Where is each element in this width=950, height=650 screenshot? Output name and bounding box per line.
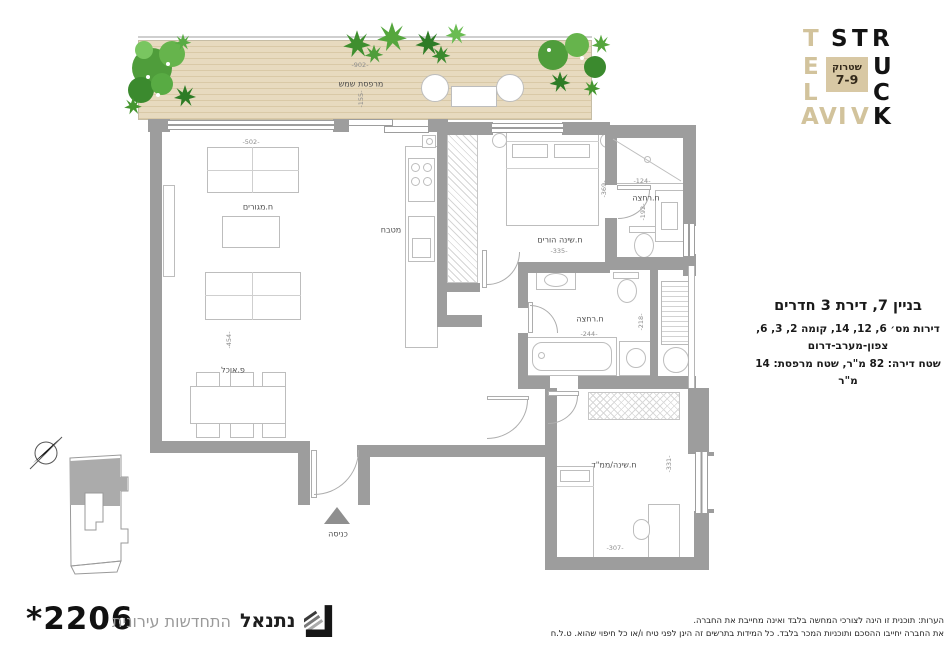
wall-segment [357,445,547,457]
dining-chair [230,423,254,438]
stove-burner [423,163,432,172]
dimension-label: -502- [242,138,259,146]
dimension-label: -192- [639,203,647,220]
dining-chair [196,372,220,387]
wall-segment [443,283,480,292]
mamad-door-arc [548,396,578,424]
toilet-tank [629,226,656,233]
drying-rack [661,281,691,345]
logo-letter: I [838,106,847,129]
compass-icon [30,437,62,469]
sofa-line [207,170,299,171]
terrace-slider-panel [348,119,393,126]
wall-segment [518,262,610,273]
living-window [168,120,334,130]
sofa-line [252,147,253,193]
terrace-railing [138,36,592,38]
logo-letter: R [872,28,890,51]
pillow [512,144,548,158]
shower-drain [644,156,651,163]
stove-burner [411,163,420,172]
key-plan-unit [70,458,127,506]
stove-burner [411,177,420,186]
dimension-label: -454- [225,331,233,348]
dining-chair [262,372,286,387]
wall-segment [150,441,310,453]
wall-segment [518,333,528,388]
developer-tagline: התחדשות עירונית [112,612,231,631]
apartment-area-line: שטח דירה: 82 מ"ר, שטח מרפסת: 14 מ"ר [752,356,944,391]
logo-square: שטרוק 7-9 [826,57,868,92]
desk-chair [633,519,650,540]
room-label: מרפסת שמש [339,80,384,89]
terrace-chair [421,74,449,102]
entrance-arrow [324,507,350,524]
wall-segment [358,445,370,505]
room-label: מטבח [381,226,401,235]
mamad-window [695,452,708,513]
disclaimer-notes: הערות: תוכנית זו הינה לצורכי המחשה בלבד … [551,614,944,640]
sink-basin [661,202,678,230]
laundry-screen [688,266,695,388]
wall-segment [447,122,493,135]
pillow [560,470,590,482]
bed-headboard-line [506,141,599,142]
dimension-label: -124- [633,177,650,185]
dimension-label: -902- [351,61,368,69]
wall-segment [333,119,349,132]
wall-segment [605,131,617,185]
bedroom-window [492,123,563,133]
desk [648,504,680,558]
toilet-tank [613,272,639,279]
disclaimer-line: הערות: תוכנית זו הינה לצורכי המחשה בלבד … [551,614,944,627]
dimension-label: -331- [665,455,673,472]
nightstand [492,133,507,148]
apartment-units-line: דירות מס׳ 6, 12, 14, קומה 2, 3, 6, [752,321,944,338]
key-plan [70,455,128,574]
apartment-orientation-line: צפון-מערב-דרום [752,338,944,355]
floor-plan-page: מרפסת שמשח.מגוריםפ.אוכלמטבחח.שינה הוריםח… [0,0,950,650]
logo-letter: E [803,56,819,79]
boiler [663,347,689,373]
corridor-door-arc [487,400,528,439]
logo-letter: S [831,28,848,51]
tv-console [163,185,175,277]
logo-letter: C [873,82,890,105]
dimension-label: -218- [637,313,645,330]
logo-letter: L [803,82,818,105]
toilet-bowl [617,279,637,303]
bathroom-window [683,224,695,256]
kitchen-fixture-dot [426,138,433,145]
logo-letter: V [851,106,869,129]
room-label: ח.שינה הורים [537,236,582,245]
dining-chair [262,423,286,438]
wall-segment [578,376,696,389]
wall-segment [650,265,658,379]
bedroom-door-arc [487,252,520,285]
terrace-chair [496,74,524,102]
wall-segment [437,315,482,327]
apartment-info: בניין 7, דירת 3 חדרים דירות מס׳ 6, 12, 1… [752,298,944,390]
developer-logo-mark [304,603,334,639]
sofa [205,272,301,320]
room-label: ח.רחצה [576,315,603,324]
struck-logo: T E L A V I V S T R U C K שטרוק 7-9 [795,20,945,132]
wall-segment [545,557,709,570]
wardrobe [588,392,680,420]
entrance-door-arc [314,450,359,495]
bathtub-drain [538,352,545,359]
washing-machine-door [626,348,646,368]
sofa-line [205,295,301,296]
room-label: ח.מגורים [243,203,273,212]
room-label: ח.רחצה [632,194,659,203]
wall-segment [437,131,447,327]
logo-letter: T [803,28,819,51]
wall-segment [562,122,610,135]
dimension-label: -155- [357,90,365,107]
room-label: כניסה [328,530,348,539]
wall-segment [518,262,528,308]
logo-letter: T [852,28,868,51]
room-label: פ.אוכל [221,366,245,375]
room-label: ח.שינה/ממ"ד [591,461,636,470]
developer-name: נתנאל [240,610,296,632]
wall-segment [150,119,162,453]
dimension-label: -369- [600,180,608,197]
bed-line [556,486,594,487]
logo-letter: K [873,106,891,129]
developer-logo: התחדשות עירונית נתנאל [112,602,334,640]
toilet-bowl [634,233,654,258]
dimension-label: -335- [550,247,567,255]
disclaimer-line: את החברה יחייבו ההסכם ותוכניות המכר בלבד… [551,627,944,640]
stove-burner [423,177,432,186]
logo-square-numbers: 7-9 [836,73,859,87]
logo-letter: A [801,106,819,129]
bathroom-door-arc [530,305,558,333]
sink-basin [544,273,568,287]
sofa-line [252,272,253,320]
coffee-table [222,216,280,248]
terrace-slider-panel [384,126,429,133]
wall-segment [688,388,709,454]
dimension-label: -307- [606,544,623,552]
pillow [554,144,590,158]
bed-blanket-line [506,168,599,169]
wall-segment [683,131,696,226]
logo-letter: V [819,106,837,129]
dining-chair [196,423,220,438]
terrace-table [451,86,497,107]
dimension-label: -244- [580,330,597,338]
kitchen-sink-basin [412,238,431,258]
wall-segment [298,445,310,505]
dining-table [190,386,286,424]
wardrobe [447,131,478,283]
apartment-title: בניין 7, דירת 3 חדרים [752,298,944,314]
logo-letter: U [873,56,892,79]
